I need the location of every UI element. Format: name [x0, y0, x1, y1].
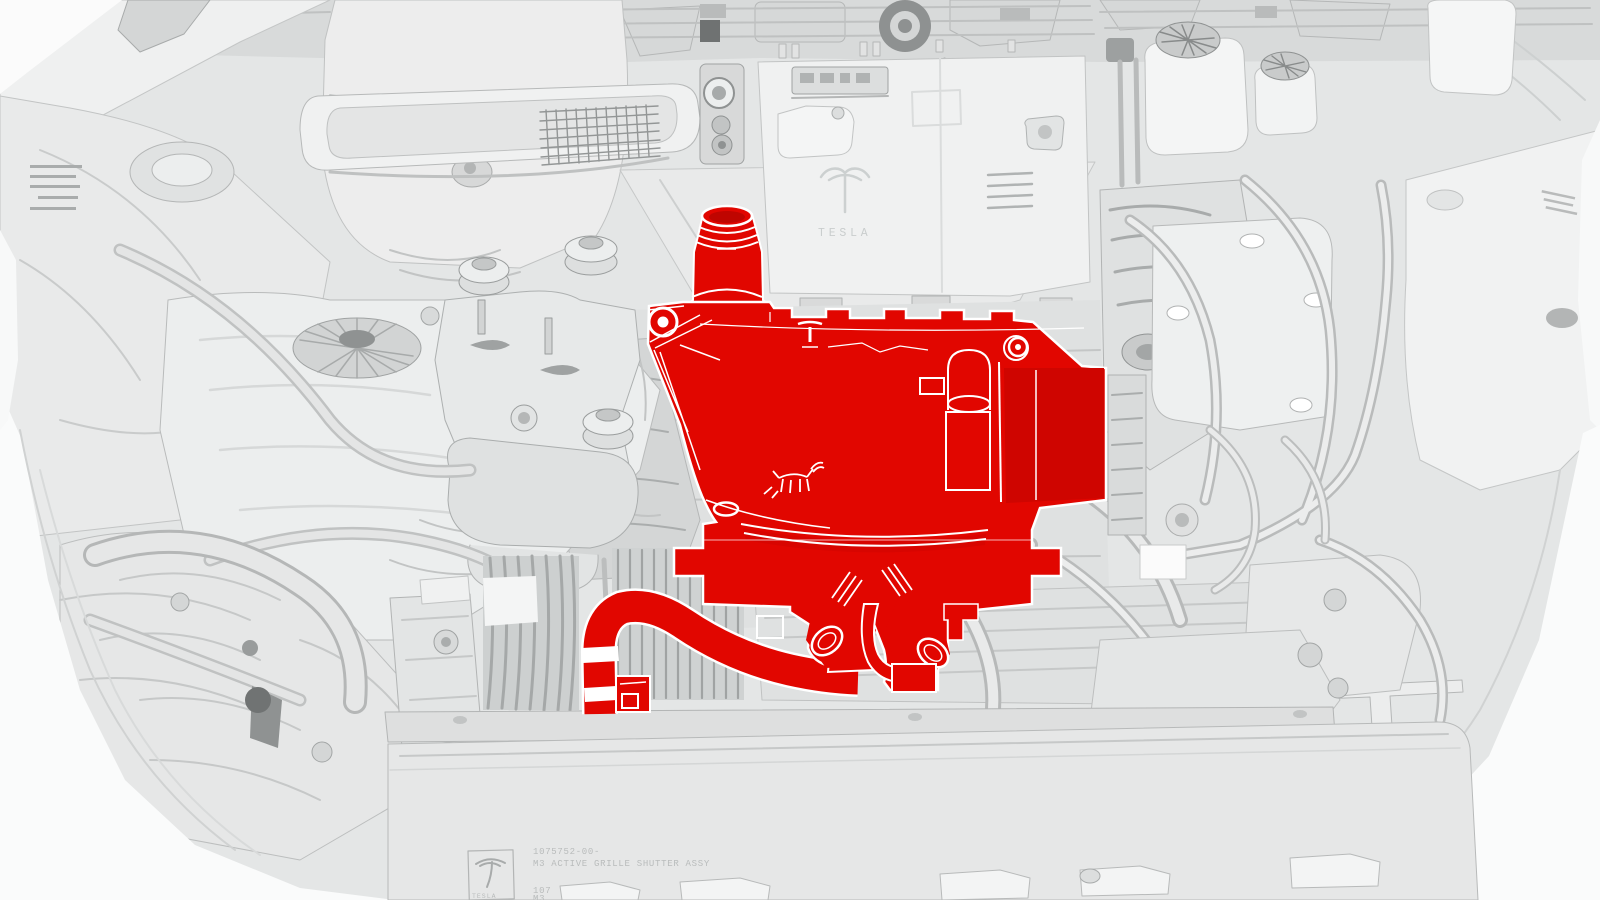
svg-text:1075752-00-: 1075752-00-	[533, 847, 600, 857]
svg-text:M3: M3	[533, 894, 545, 900]
svg-text:M3 ACTIVE GRILLE SHUTTER ASSY: M3 ACTIVE GRILLE SHUTTER ASSY	[533, 859, 710, 869]
svg-text:TESLA: TESLA	[472, 893, 497, 900]
svg-text:TESLA: TESLA	[818, 227, 872, 240]
